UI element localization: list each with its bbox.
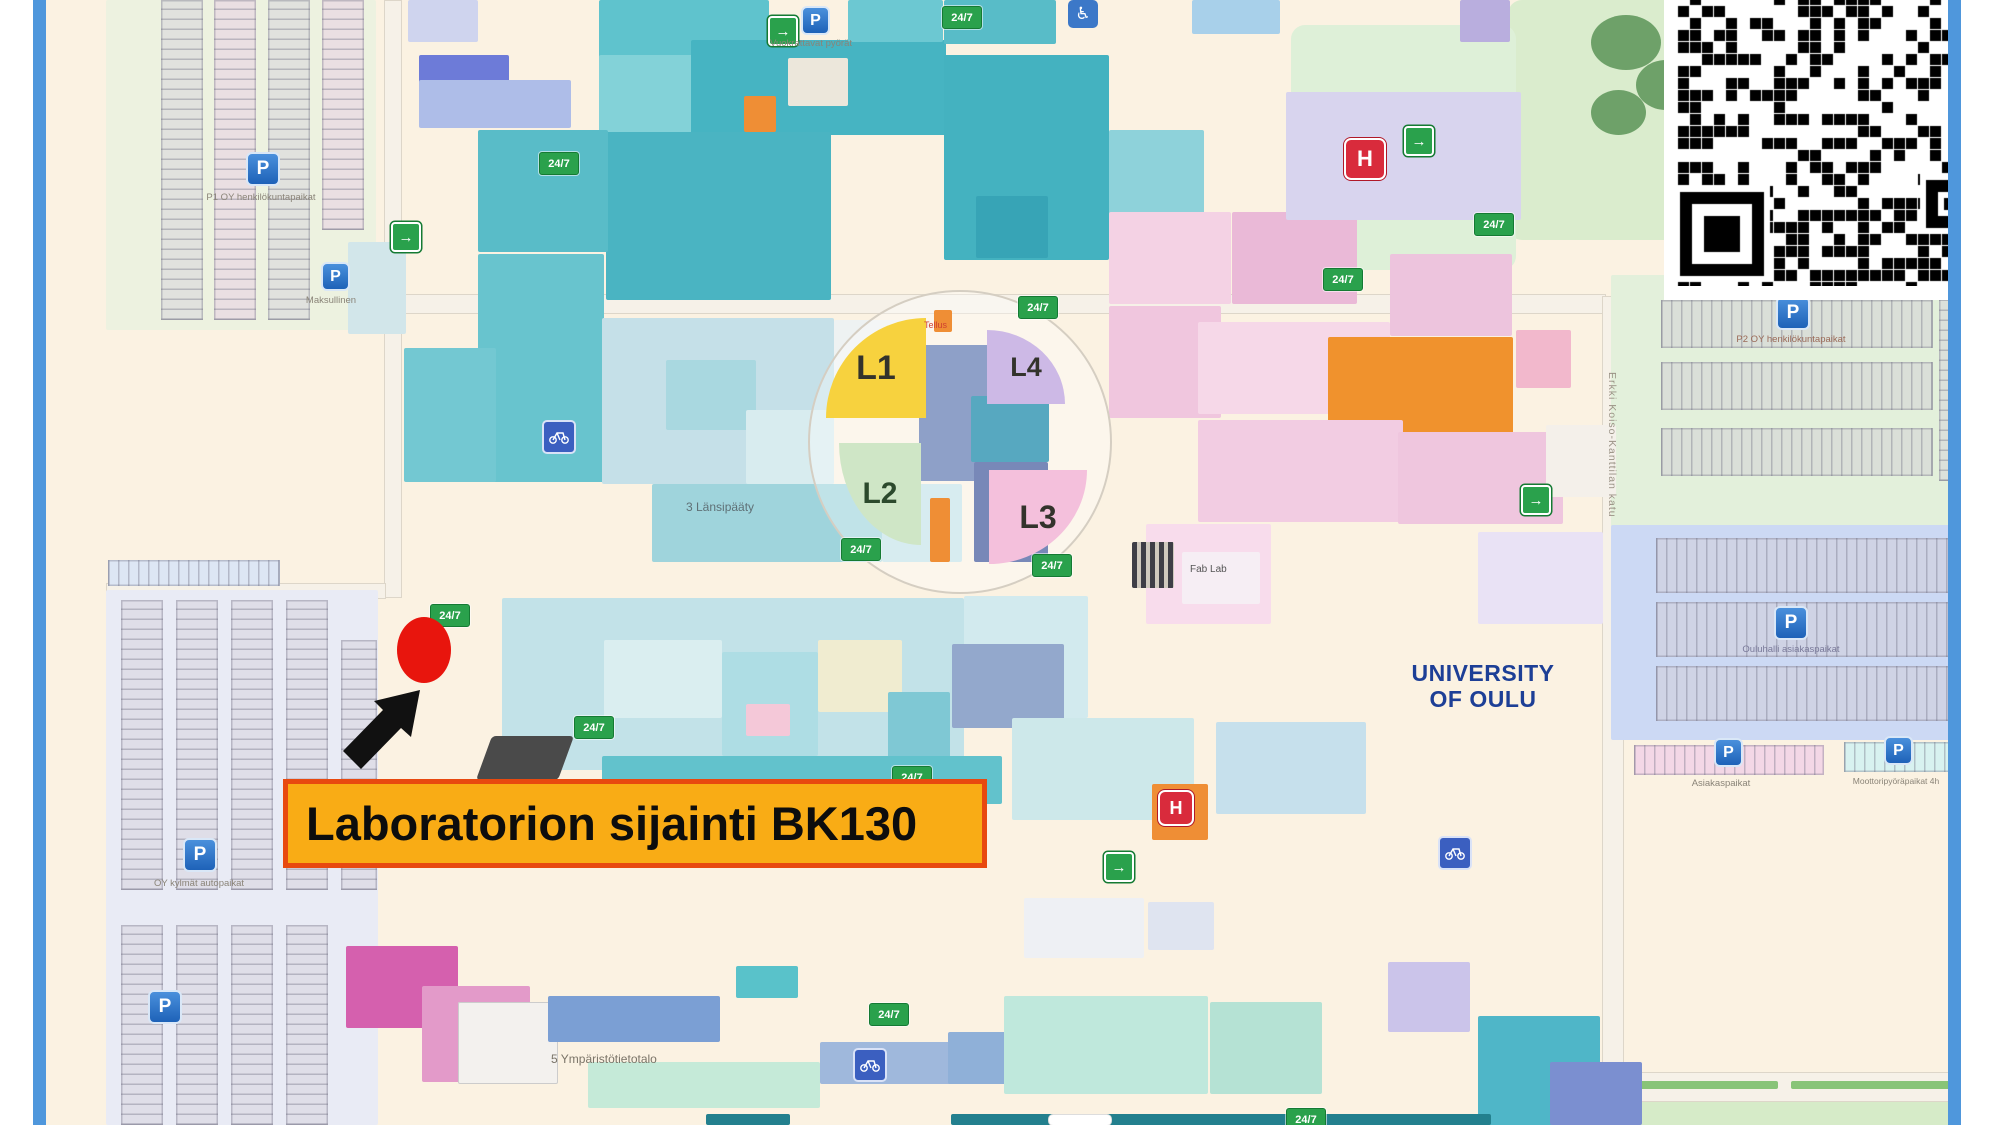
parking-icon: P <box>1714 738 1743 767</box>
parking-label: Vuokrattavat pyörät <box>731 38 891 49</box>
open-247-badge: 24/7 <box>1286 1108 1326 1125</box>
building <box>1182 552 1260 604</box>
parking-label: P2 OY henkilökuntapaikat <box>1696 334 1886 345</box>
building <box>971 396 1049 462</box>
open-247-badge: 24/7 <box>841 538 881 561</box>
parking-glyph: P <box>159 996 172 1018</box>
building-label-environment: 5 Ympäristötietotalo <box>551 1052 657 1066</box>
bicycle-icon <box>853 1048 887 1082</box>
qr-code <box>1674 0 1948 286</box>
campus-map-figure: L1 L4 L2 L3 <box>0 0 2000 1125</box>
open-247-badge: 24/7 <box>574 716 614 739</box>
university-name: UNIVERSITY OF OULU <box>1388 660 1578 712</box>
building <box>419 80 571 128</box>
parking-rows <box>1939 296 1948 481</box>
street-name: Erkki Koiso-Kanttilan katu <box>1606 372 1618 518</box>
building <box>588 1062 820 1108</box>
bicycle-glyph <box>860 1059 880 1072</box>
building <box>706 1114 790 1125</box>
restaurant-icon: H <box>1158 790 1194 826</box>
building <box>604 640 722 718</box>
building <box>478 254 604 482</box>
building-label-west-end: 3 Länsipääty <box>686 500 754 514</box>
building <box>408 0 478 42</box>
building <box>1148 902 1214 950</box>
parking-rows <box>1661 362 1933 410</box>
restaurant-glyph: H <box>1357 146 1373 172</box>
entrance-icon: → <box>1521 485 1551 515</box>
parking-label: Maksullinen <box>271 295 391 306</box>
lecture-hall-label: L3 <box>1019 499 1056 536</box>
location-label-text: Laboratorion sijainti BK130 <box>306 796 917 851</box>
building <box>1516 330 1571 388</box>
bicycle-glyph <box>1445 847 1465 860</box>
building <box>476 736 574 780</box>
building <box>599 55 694 133</box>
building <box>744 96 776 132</box>
open-247-badge: 24/7 <box>430 604 470 627</box>
building <box>848 0 943 42</box>
building-label-tellus: Tellus <box>924 320 947 330</box>
parking-rows <box>121 600 163 890</box>
entrance-icon: → <box>1104 852 1134 882</box>
badge-label: 24/7 <box>1295 1114 1316 1125</box>
parking-icon: P <box>1884 736 1913 765</box>
open-247-badge: 24/7 <box>1018 296 1058 319</box>
building <box>1198 420 1403 522</box>
map-frame-right <box>1948 0 1961 1125</box>
map-canvas: L1 L4 L2 L3 <box>46 0 1948 1125</box>
badge-label: 24/7 <box>878 1009 899 1021</box>
parking-glyph: P <box>1787 302 1800 324</box>
parking-label: P1 OY henkilökuntapaikat <box>166 192 356 203</box>
entrance-icon: → <box>1404 126 1434 156</box>
page-margin-right <box>1961 0 2000 1125</box>
lawn <box>1606 1100 1948 1125</box>
badge-label: 24/7 <box>1483 219 1504 231</box>
parking-glyph: P <box>257 158 270 180</box>
parking-icon: P <box>801 6 830 35</box>
parking-glyph: P <box>1893 742 1904 760</box>
building <box>348 242 406 334</box>
parking-rows <box>286 925 328 1125</box>
building <box>1550 1062 1642 1125</box>
parking-icon: P <box>1776 296 1810 330</box>
bicycle-icon <box>1438 836 1472 870</box>
lecture-hall-l3: L3 <box>989 470 1087 564</box>
parking-label: Asiakaspaikat <box>1656 778 1786 789</box>
parking-icon: P <box>321 262 350 291</box>
building <box>1024 898 1144 958</box>
restaurant-glyph: H <box>1170 798 1183 819</box>
road-median <box>1628 1081 1778 1089</box>
entrance-arrow: → <box>776 23 791 40</box>
building <box>458 1002 558 1084</box>
parking-glyph: P <box>330 268 341 286</box>
building <box>736 966 798 998</box>
parking-rows <box>176 925 218 1125</box>
parking-rows <box>1656 538 1948 593</box>
tree <box>1591 90 1646 135</box>
entrance-arrow: → <box>399 229 414 246</box>
parking-rows <box>1661 428 1933 476</box>
building <box>1192 0 1280 34</box>
university-name-line2: OF OULU <box>1388 686 1578 712</box>
open-247-badge: 24/7 <box>1474 213 1514 236</box>
wheelchair-icon: ♿ <box>1068 0 1098 28</box>
parking-icon: P <box>246 152 280 186</box>
restaurant-icon: H <box>1344 138 1386 180</box>
building <box>606 132 831 300</box>
page-margin-left <box>0 0 33 1125</box>
building <box>1286 92 1521 220</box>
building <box>746 704 790 736</box>
building <box>952 644 1064 728</box>
building-label-fablab: Fab Lab <box>1190 564 1227 575</box>
badge-label: 24/7 <box>548 158 569 170</box>
entrance-arrow: → <box>1412 133 1427 150</box>
university-name-line1: UNIVERSITY <box>1388 660 1578 686</box>
building <box>1109 212 1231 304</box>
parking-glyph: P <box>194 844 207 866</box>
badge-label: 24/7 <box>1332 274 1353 286</box>
map-frame-left <box>33 0 46 1125</box>
parking-label: Ouluhalli asiakaspaikat <box>1696 644 1886 655</box>
open-247-badge: 24/7 <box>539 152 579 175</box>
entrance-arrow: → <box>1112 859 1127 876</box>
road-median <box>1791 1081 1948 1089</box>
parking-rows <box>108 560 280 586</box>
parking-rows <box>121 925 163 1125</box>
parking-rows <box>231 600 273 890</box>
building <box>666 360 756 430</box>
building <box>930 498 950 562</box>
building <box>1460 0 1510 42</box>
parking-glyph: P <box>810 12 821 30</box>
building <box>548 996 720 1042</box>
entrance-icon: → <box>391 222 421 252</box>
lecture-hall-label: L1 <box>856 349 896 388</box>
badge-label: 24/7 <box>951 12 972 24</box>
badge-label: 24/7 <box>1041 560 1062 572</box>
parking-glyph: P <box>1723 744 1734 762</box>
open-247-badge: 24/7 <box>942 6 982 29</box>
building <box>1004 996 1208 1094</box>
building <box>404 348 496 482</box>
building <box>478 130 608 252</box>
parking-rows <box>231 925 273 1125</box>
badge-label: 24/7 <box>439 610 460 622</box>
bicycle-glyph <box>549 431 569 444</box>
building <box>951 1114 1491 1125</box>
wheelchair-glyph: ♿ <box>1075 4 1090 24</box>
building <box>1132 542 1174 588</box>
building <box>976 196 1048 258</box>
bicycle-icon <box>542 420 576 454</box>
parking-glyph: P <box>1785 612 1798 634</box>
building <box>1478 532 1603 624</box>
location-label-box: Laboratorion sijainti BK130 <box>283 779 987 868</box>
open-247-badge: 24/7 <box>1323 268 1363 291</box>
parking-icon: P <box>148 990 182 1024</box>
entrance-arrow: → <box>1529 492 1544 509</box>
parking-icon: P <box>183 838 217 872</box>
parking-rows <box>161 0 203 320</box>
lecture-hall-label: L2 <box>862 477 897 511</box>
badge-label: 24/7 <box>1027 302 1048 314</box>
building <box>1049 1115 1111 1125</box>
parking-icon: P <box>1774 606 1808 640</box>
open-247-badge: 24/7 <box>869 1003 909 1026</box>
building <box>1388 962 1470 1032</box>
badge-label: 24/7 <box>583 722 604 734</box>
building <box>788 58 848 106</box>
lecture-hall-label: L4 <box>1010 352 1042 383</box>
building <box>1390 254 1512 336</box>
tree <box>1591 15 1661 70</box>
building <box>1216 722 1366 814</box>
building <box>1109 130 1204 215</box>
open-247-badge: 24/7 <box>1032 554 1072 577</box>
building <box>1210 1002 1322 1094</box>
badge-label: 24/7 <box>850 544 871 556</box>
parking-rows <box>1656 666 1948 721</box>
parking-label: Moottoripyöräpaikat 4h <box>1816 776 1948 786</box>
parking-label: OY kylmät autopaikat <box>104 878 294 889</box>
